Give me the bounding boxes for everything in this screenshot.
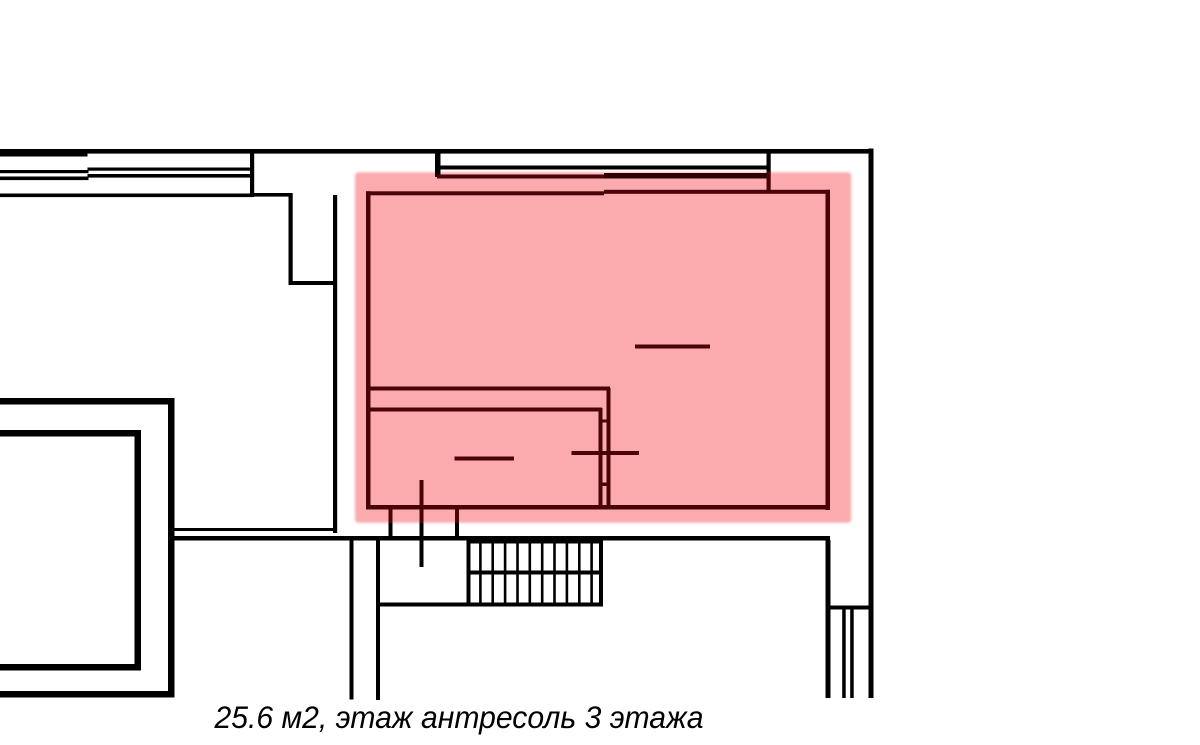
svg-text:25.6 м2, этаж антресоль 3 этаж: 25.6 м2, этаж антресоль 3 этажа (214, 700, 704, 735)
